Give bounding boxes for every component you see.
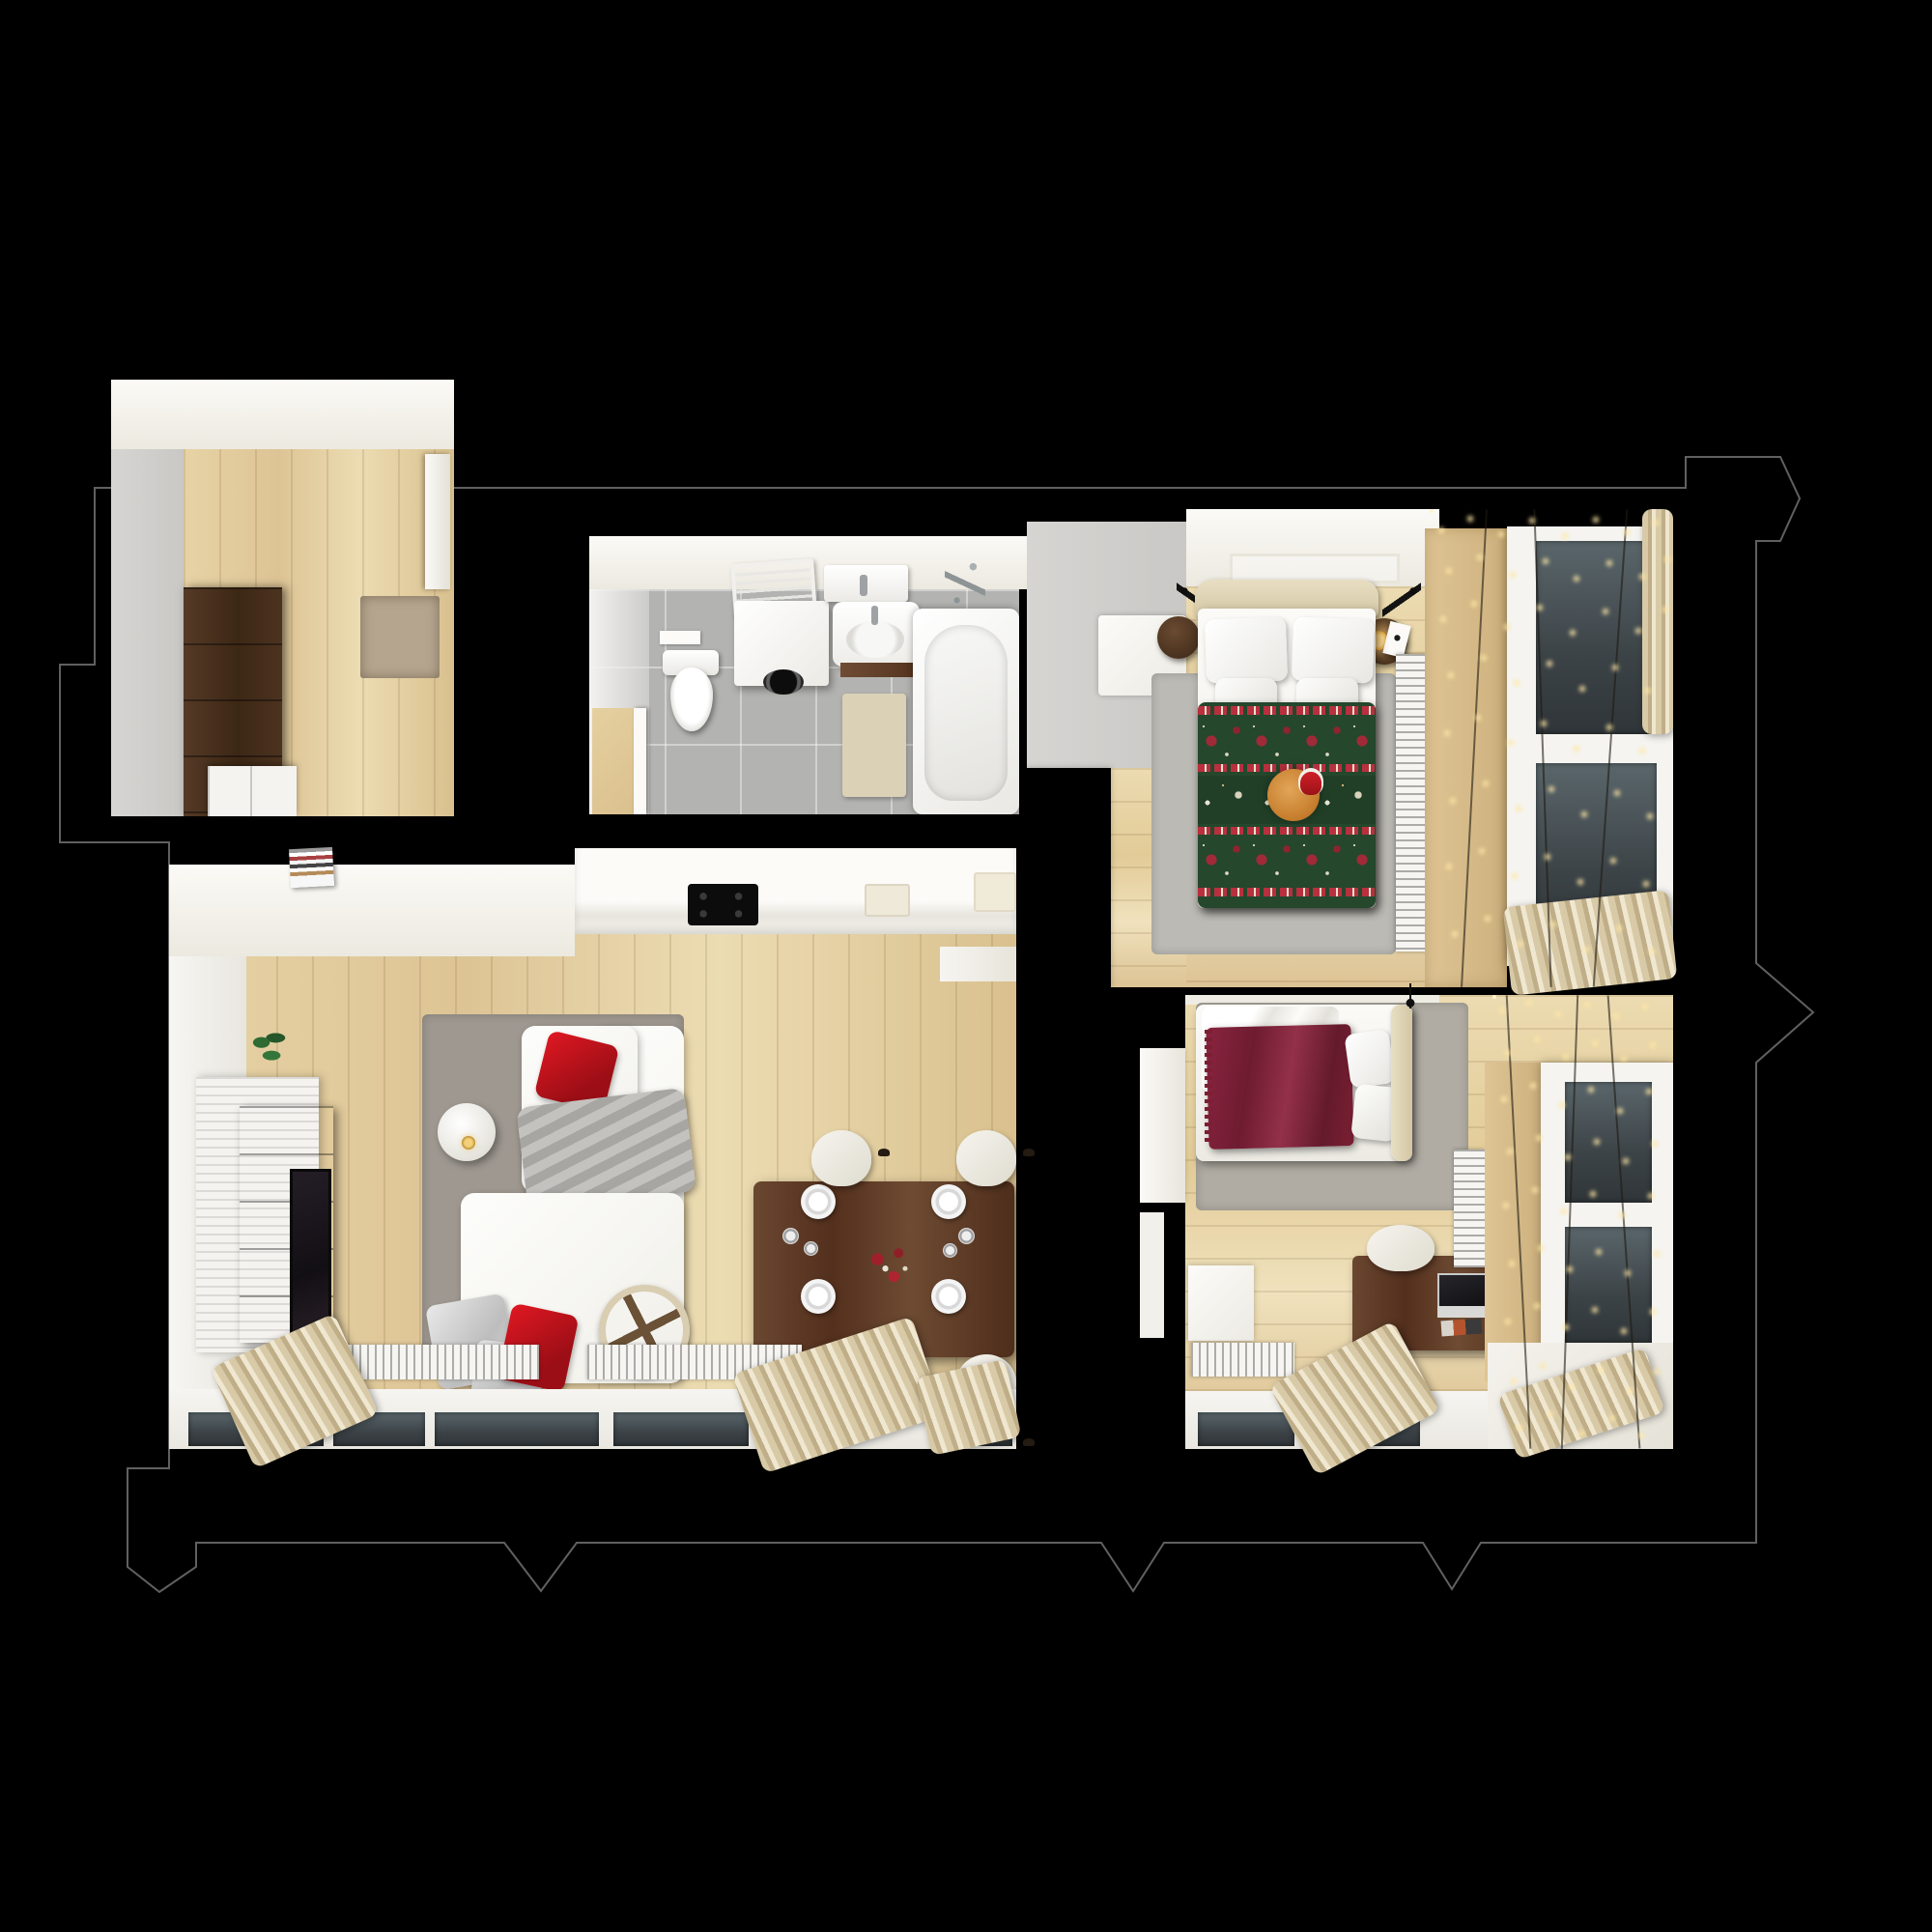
dining-chair [956,1130,1016,1186]
window-glass [1536,541,1657,734]
gold-table-lamp [462,1136,475,1150]
tv-screen [290,1169,331,1341]
kitchen-unit [974,872,1016,912]
wine-glass [958,1228,975,1244]
washer-drum [763,669,804,695]
room-bedroom-main [1027,509,1673,987]
santa-hat [1300,772,1321,795]
wine-glass [943,1243,957,1258]
hall-gray-floor [111,449,184,816]
vanity-wood-shelf [840,663,918,677]
window-pane [1198,1412,1294,1446]
second-window-frame [1541,1063,1673,1381]
shoe-cubbies [208,766,297,816]
burgundy-throw [1206,1024,1353,1150]
window-glass [1565,1082,1652,1203]
kitchen-counter [575,848,1016,934]
wine-glass [804,1241,818,1256]
blanket-zigzag [1198,706,1376,715]
sink-top-faucet [860,575,867,596]
blanket-zigzag [1198,888,1376,896]
master-door-threshold [940,947,1016,981]
throw-fringe [1205,1030,1212,1144]
magazine-shelf [289,847,334,888]
living-topleft-wall [169,865,575,956]
black-wall-lamp [1402,983,1419,1009]
main-curtain-top [1642,509,1673,734]
round-side-table [438,1103,496,1161]
vanity-faucet [871,606,878,625]
doormat [360,596,440,678]
window-sill-wood-2 [1485,1063,1541,1381]
vanity-basin [846,621,904,658]
main-curtain-bottom [1503,890,1678,995]
plate [931,1279,966,1314]
second-pillow [1344,1029,1395,1089]
room-entry-hall [111,380,454,816]
hall-top-wall [111,380,454,449]
window-glass [1565,1227,1652,1343]
main-wardrobe [1027,768,1111,987]
hall-door [425,454,450,589]
pillow-large [1205,617,1288,684]
red-centerpiece [858,1235,923,1296]
bath-door-leaf [634,708,646,814]
room-bedroom-second [1185,995,1673,1449]
floor-plan-render [0,0,1932,1932]
dining-chair [811,1130,871,1186]
cooktop [688,884,758,925]
pillow-large [1292,617,1375,684]
kitchen-sink [865,884,910,917]
second-radiator-bottom [1191,1343,1294,1377]
second-radiator-window [1454,1150,1485,1267]
nightstand-left [1157,616,1200,659]
plant [249,1024,290,1070]
blanket-poinsettia-band [1198,838,1376,882]
wine-glass [782,1228,799,1244]
blanket-poinsettia-band [1198,719,1376,761]
window-sill-wood [1425,528,1507,987]
bathtub-inner [924,625,1008,801]
second-bedroom-open-door [1140,1048,1185,1203]
plate [801,1184,836,1219]
bath-mat [842,694,906,797]
second-wardrobe [1188,1265,1254,1341]
magazine [1440,1319,1482,1337]
window-pane [435,1412,599,1446]
plate [931,1184,966,1219]
toilet-flush-plate [660,631,700,644]
second-headboard [1391,1005,1412,1161]
main-radiator [1396,654,1427,952]
shower-fixture [945,554,985,613]
corridor-wall-frame [1140,1212,1164,1338]
wall-lamp-right [1382,582,1421,617]
window-pane [613,1412,749,1446]
room-living-kitchen [169,848,1016,1449]
blanket-zigzag [1198,827,1376,835]
desk-chair [1367,1225,1435,1271]
laptop-keyboard [1437,1306,1492,1318]
room-bathroom [589,536,1029,821]
plate [801,1279,836,1314]
